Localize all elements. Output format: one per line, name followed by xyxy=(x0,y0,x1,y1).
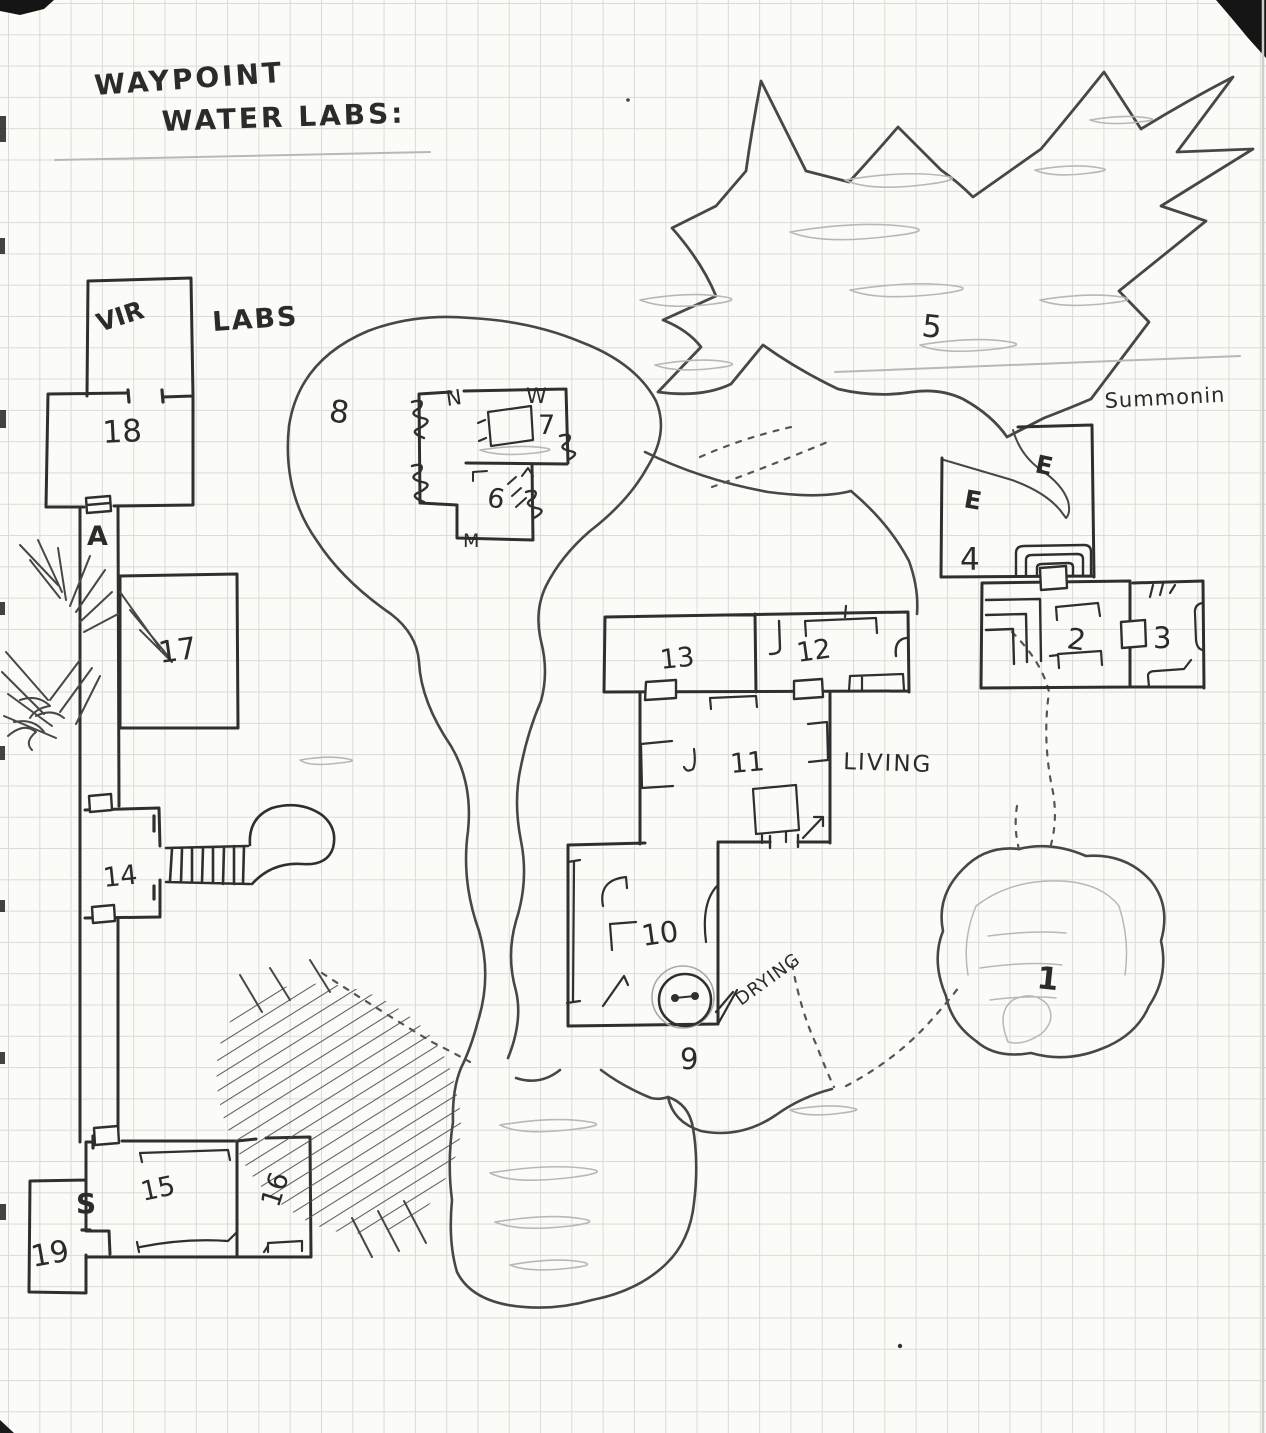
wall-mark-n: N xyxy=(444,385,463,411)
label-room-9: 9 xyxy=(680,1042,698,1076)
scan-edge-ticks-left xyxy=(0,116,6,1220)
label-room-13: 13 xyxy=(658,642,695,676)
handwritten-labels: WAYPOINT WATER LABS: VIR LABS 18 A 17 14… xyxy=(28,56,1226,1275)
room-3-tick-marks xyxy=(1150,584,1175,597)
rooms-13-12-11-10-walls xyxy=(568,612,909,1026)
stairs-west xyxy=(166,805,334,884)
scanned-graph-paper-map: WAYPOINT WATER LABS: VIR LABS 18 A 17 14… xyxy=(0,0,1266,1433)
label-room-18: 18 xyxy=(102,413,143,451)
label-room-17: 17 xyxy=(156,631,199,671)
room-7-table xyxy=(478,406,533,446)
west-door-symbols xyxy=(86,496,119,1145)
door-4-to-2 xyxy=(1040,566,1067,590)
scan-speck-2 xyxy=(626,98,630,102)
label-room-14: 14 xyxy=(101,860,138,894)
lake-5-outline xyxy=(658,72,1253,437)
label-room-15: 15 xyxy=(138,1170,178,1207)
door-2-to-3 xyxy=(1121,620,1146,648)
scan-corner-top-right xyxy=(1216,0,1266,58)
label-lake-5: 5 xyxy=(920,308,943,346)
elemental-mark-1: E xyxy=(1033,450,1056,482)
scan-corner-bottom-left xyxy=(0,1420,14,1433)
scan-speck-1 xyxy=(898,1344,902,1348)
label-room-6: 6 xyxy=(485,482,507,516)
room-2-nested-stairs xyxy=(986,599,1041,664)
hand-drawn-dungeon-map: WAYPOINT WATER LABS: VIR LABS 18 A 17 14… xyxy=(0,0,1266,1433)
rooms-vir-18-corridor-17-14-walls xyxy=(46,278,238,1142)
well-rim xyxy=(659,974,711,1026)
wall-mark-w: W xyxy=(526,384,547,408)
label-living-area: LIVING xyxy=(843,749,933,778)
scan-corner-top-left xyxy=(0,0,54,15)
wall-mark-m: M xyxy=(463,530,479,552)
elemental-mark-2: E xyxy=(962,484,984,516)
bush-scribble-near-door-a xyxy=(2,540,172,750)
label-cave-8: 8 xyxy=(327,393,352,431)
label-labs-area: LABS xyxy=(211,301,299,338)
label-cave-1: 1 xyxy=(1035,960,1060,998)
label-drying-well: DRYING xyxy=(732,949,805,1010)
label-summoning: Summonin xyxy=(1104,383,1226,413)
label-room-7: 7 xyxy=(538,410,555,441)
dotted-trails xyxy=(322,426,1055,1087)
well xyxy=(652,966,714,1028)
cave-1-outline xyxy=(938,846,1165,1057)
label-room-3: 3 xyxy=(1153,621,1171,655)
label-room-19: 19 xyxy=(28,1234,72,1275)
vegetation xyxy=(2,540,461,1257)
map-title-line-2: WATER LABS: xyxy=(161,97,406,138)
thicket-hatch-patch xyxy=(216,984,461,1234)
label-vir-room: VIR xyxy=(93,295,148,337)
label-room-12: 12 xyxy=(795,633,833,668)
label-room-10: 10 xyxy=(639,914,680,953)
scan-artifacts xyxy=(0,0,1266,1433)
label-room-4: 4 xyxy=(960,542,980,578)
label-door-a: A xyxy=(87,521,108,552)
label-room-11: 11 xyxy=(729,746,766,780)
central-building xyxy=(567,606,909,1028)
map-title-line-1: WAYPOINT xyxy=(93,56,285,102)
label-door-s: S xyxy=(76,1187,96,1220)
central-door-hooks-ticks xyxy=(770,621,906,848)
scanner-streaks xyxy=(55,152,1240,372)
pond-outline xyxy=(450,1068,832,1308)
